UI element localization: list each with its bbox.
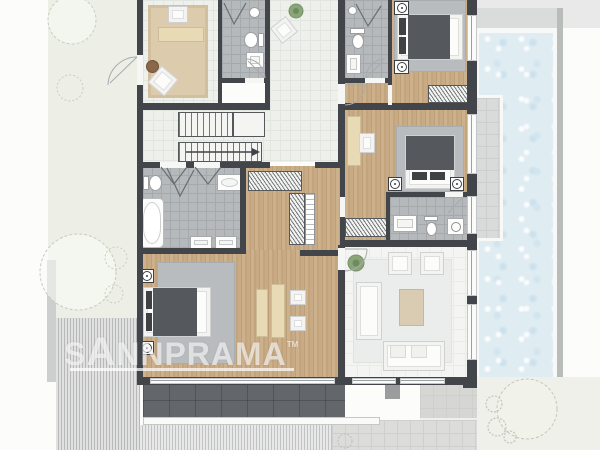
bedroom3-closet-opening [340,197,345,217]
living-sofa-left [356,282,382,340]
wall-master-bath-right [240,166,246,250]
front-door-opening [137,55,143,85]
bedroom3-pillow2 [430,172,445,180]
master-pillow1 [146,291,152,309]
stair-landing [233,112,265,137]
master-bath-counter [217,174,242,191]
wall-h-study [137,103,270,110]
window-living-bottom-1 [352,378,396,384]
bedroom3-nightstand-lamp-right [450,177,464,191]
wall-bath-c-left [386,192,390,240]
wall-h-bedroom3-top-left [345,103,388,110]
bedroom3-pillow1 [412,172,427,180]
closet-wardrobe-side [289,193,305,245]
bedroom3-duvet [406,136,454,170]
bedroom2-duvet [408,15,450,59]
garden-edge-strip [47,260,56,382]
window-living-2 [467,304,477,360]
bedroom2-nightstand-lamp-top [394,1,409,15]
master-stool-1 [290,290,306,305]
master-pillow2 [146,313,152,331]
bath-b-door-opening [365,78,385,83]
bath-c-door-opening [445,192,463,197]
bath-b-sink-round [348,6,357,15]
wall-bath-a-right [265,0,270,110]
bedroom2-pillow2 [399,37,406,54]
living-armchair-2 [420,252,444,275]
watermark-prefix: S [64,336,86,372]
watermark: SANNPRAMATM [64,330,314,378]
study-desk [158,27,204,42]
watermark-tm-mark: TM [287,340,299,349]
terrace-rail [143,417,380,425]
bedroom3-wardrobe [345,218,388,237]
bath-a-vanity [246,52,264,68]
bedroom2-nightstand-lamp-bottom [394,60,409,74]
bath-b-toilet-bowl [352,34,364,49]
window-living-bottom-2 [400,378,445,384]
study-chair-top [168,6,188,23]
floor-plan-canvas: SANNPRAMATM [0,0,600,450]
bath-c-toilet-tank [424,216,438,221]
living-armchair-1 [388,252,412,275]
pool-deck-top-band2 [477,8,562,28]
bath-a-toilet-tank [258,33,264,47]
bath-c-toilet-bowl [426,222,437,236]
master-bath-tub [140,198,164,248]
wall-corner-stub-br [463,377,477,388]
garden-left [48,0,148,318]
master-bath-door-opening-1 [160,162,186,168]
bath-c-vanity [393,215,417,232]
window-bedroom2 [467,15,477,61]
window-living-1 [467,250,477,296]
bedroom2-inner-opening [388,85,392,105]
window-bedroom3 [467,114,477,174]
stair-flight-lower [178,142,262,162]
pool-side-platform [474,95,503,241]
master-duvet [153,288,197,336]
bedroom3-nightstand-lamp-left [388,177,402,191]
wall-bedroom3-left [340,110,345,245]
bedroom3-chair [359,133,375,153]
terrace [143,383,345,417]
window-master-sliding [150,378,335,384]
pool-deck-top-right [562,0,600,28]
closet-wardrobe-top [248,171,302,191]
bedroom2-wardrobe [428,85,468,103]
bedroom2-pillow1 [399,18,406,35]
wall-master-bath-bottom [137,248,246,254]
bath-c-shower-tray [447,218,464,235]
master-stool-2 [290,316,306,331]
living-sofa-cushion-1 [390,345,406,358]
living-sofa-cushion-2 [411,345,427,358]
bedroom2-door-opening [338,84,345,104]
wall-h-bedrooms-divider [392,103,467,110]
living-door-opening [338,248,345,270]
bath-a-sink-round [249,7,260,18]
wall-study-right [218,0,222,103]
closet-shelves [305,193,315,245]
stair-flight-upper [178,112,233,137]
master-bath-toilet-bowl [149,175,162,191]
living-coffee-table [399,289,424,326]
watermark-suffix: NNPRAMA [116,336,287,372]
watermark-underline [70,368,294,371]
bath-a-door-opening [245,78,264,83]
window-bath-c [467,196,477,234]
bath-b-vanity [346,54,361,74]
wall-living-top [340,240,467,247]
right-fence [557,8,563,382]
bath-a-toilet-bowl [244,32,258,48]
master-bath-door-opening-2 [194,162,220,168]
bottom-deck [140,425,332,450]
